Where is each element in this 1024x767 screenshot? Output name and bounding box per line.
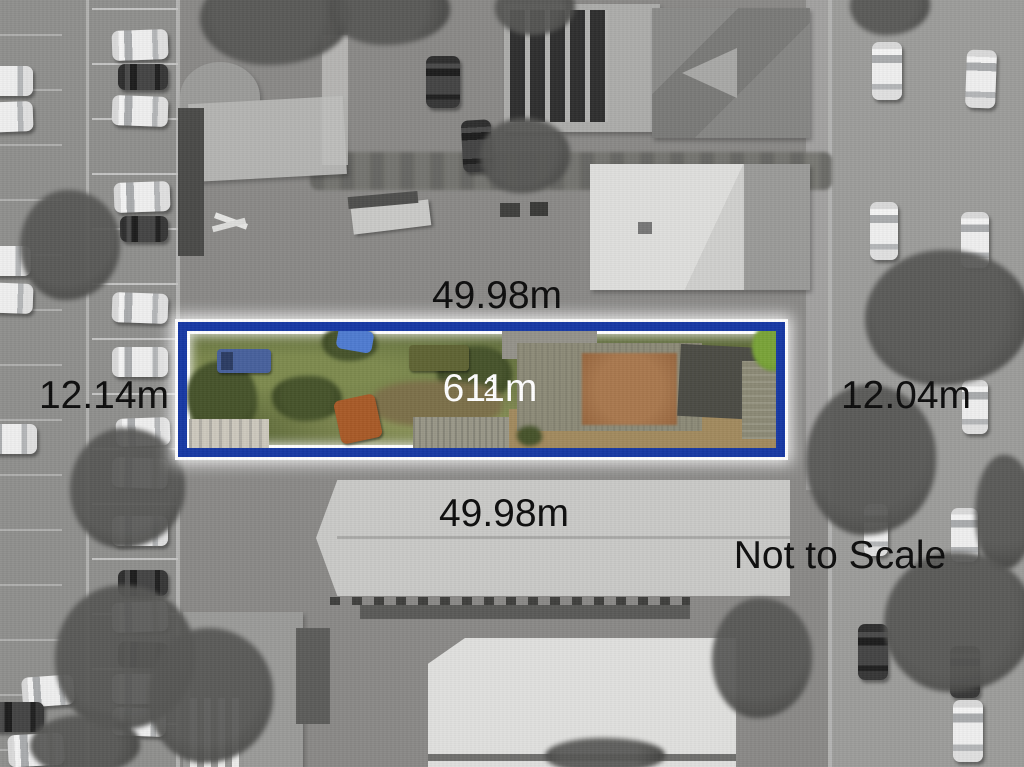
tree-canopy <box>495 0 575 35</box>
parked-car <box>965 49 997 108</box>
tree-canopy <box>330 0 450 45</box>
lot-area-label: 611m2 <box>425 366 555 412</box>
parked-car <box>0 282 34 314</box>
parked-car <box>111 29 168 61</box>
orange-excavator <box>333 393 383 445</box>
tree-canopy <box>480 118 570 193</box>
tree-canopy <box>712 598 812 718</box>
tree-canopy <box>865 250 1024 385</box>
parked-car <box>111 292 168 324</box>
parked-car <box>111 95 168 127</box>
left-width-label: 12.14m <box>14 374 194 418</box>
parked-car <box>0 702 44 732</box>
tree-canopy <box>148 628 273 763</box>
parked-car <box>0 101 34 133</box>
rusty-roof-section <box>582 353 677 425</box>
gray-corrugated-roof <box>413 417 509 448</box>
shrub <box>272 376 342 421</box>
parked-car <box>118 64 168 90</box>
parked-car <box>953 700 983 762</box>
not-to-scale-label: Not to Scale <box>720 534 960 578</box>
white-shed-roof <box>189 419 269 448</box>
parked-car <box>870 202 898 260</box>
bottom-width-label: 49.98m <box>414 492 594 536</box>
aerial-property-photo: 49.98m 12.14m 12.04m 49.98m 611m2 Not to… <box>0 0 1024 767</box>
truck-cab-window <box>221 352 233 370</box>
tree-canopy <box>30 715 140 767</box>
parked-car <box>113 181 170 213</box>
parked-car <box>0 424 37 454</box>
parked-car <box>858 624 888 680</box>
tree-canopy <box>545 738 665 767</box>
shrub <box>517 426 542 446</box>
tree-canopy <box>200 0 350 65</box>
parked-car <box>0 66 33 96</box>
tree-canopy <box>850 0 930 35</box>
parked-car <box>872 42 902 100</box>
right-width-label: 12.04m <box>816 374 996 418</box>
tree-canopy <box>975 455 1024 570</box>
parked-car <box>120 216 168 242</box>
tree-canopy <box>20 190 120 300</box>
top-width-label: 49.98m <box>407 274 587 318</box>
parked-car <box>426 56 460 108</box>
parked-car <box>112 347 168 377</box>
right-shed-roof <box>742 361 776 439</box>
